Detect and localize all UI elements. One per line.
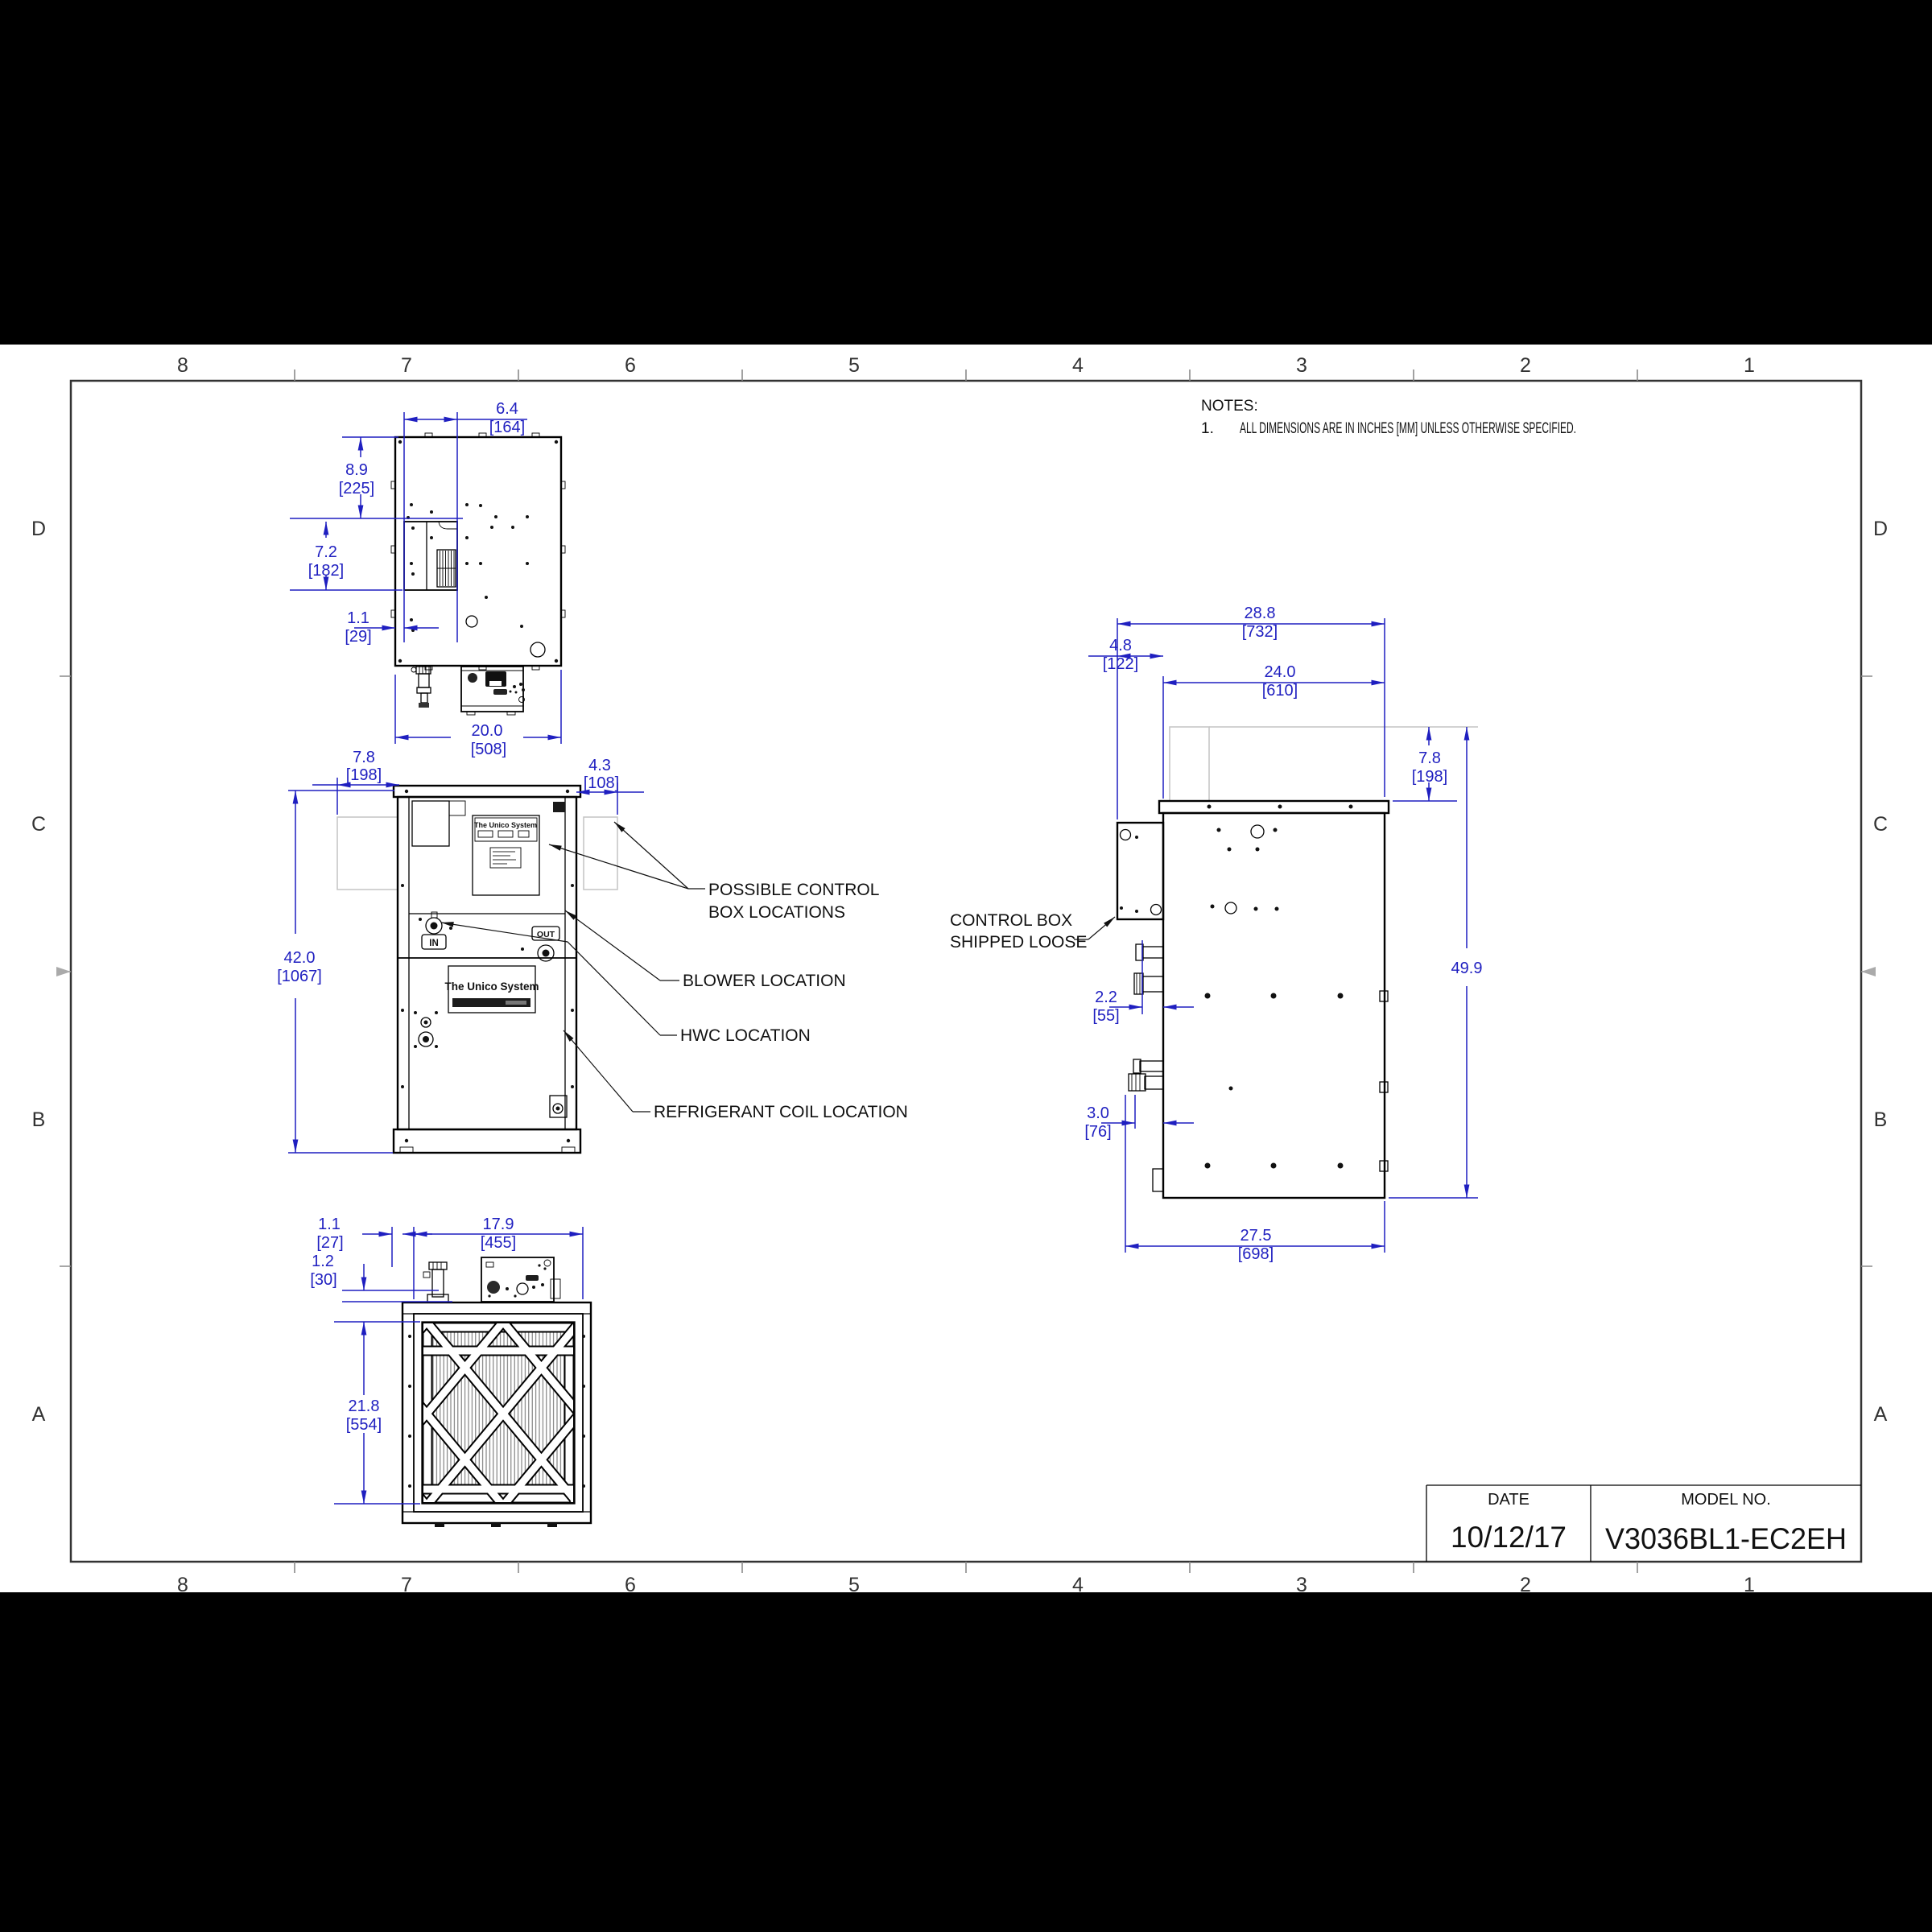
svg-text:[554]: [554] [346, 1416, 382, 1434]
svg-text:[108]: [108] [584, 774, 619, 792]
zone-row-right-B: B [1874, 1108, 1888, 1131]
svg-text:[610]: [610] [1262, 682, 1298, 700]
svg-text:4.8: 4.8 [1109, 637, 1132, 654]
svg-text:REFRIGERANT COIL LOCATION: REFRIGERANT COIL LOCATION [654, 1103, 908, 1121]
notes-title: NOTES: [1201, 398, 1258, 415]
svg-text:42.0: 42.0 [284, 949, 316, 967]
svg-text:1.1: 1.1 [318, 1216, 341, 1233]
svg-text:[698]: [698] [1238, 1245, 1274, 1263]
svg-text:[29]: [29] [345, 628, 371, 646]
svg-text:49.9: 49.9 [1451, 960, 1483, 977]
svg-text:27.5: 27.5 [1241, 1227, 1272, 1245]
svg-text:6.4: 6.4 [496, 400, 518, 418]
front-view-vent [553, 802, 565, 812]
zone-col-bot-1: 1 [1744, 1574, 1755, 1596]
svg-text:BOX LOCATIONS: BOX LOCATIONS [708, 903, 845, 922]
svg-text:[122]: [122] [1103, 655, 1138, 673]
zone-col-top-4: 4 [1072, 354, 1084, 377]
zone-row-right-C: C [1873, 813, 1888, 836]
svg-text:8.9: 8.9 [345, 461, 368, 479]
zone-col-bot-6: 6 [625, 1574, 636, 1596]
logo-plate-text: The Unico System [444, 980, 539, 993]
svg-text:4.3: 4.3 [588, 757, 611, 774]
svg-text:[164]: [164] [489, 419, 525, 436]
svg-text:17.9: 17.9 [483, 1216, 514, 1233]
svg-text:7.8: 7.8 [353, 749, 375, 766]
svg-text:[225]: [225] [339, 480, 374, 497]
zone-col-bot-4: 4 [1072, 1574, 1084, 1596]
note-1-text: ALL DIMENSIONS ARE IN INCHES [MM] UNLESS… [1240, 420, 1576, 437]
note-1-number: 1. [1201, 420, 1214, 437]
svg-text:28.8: 28.8 [1245, 605, 1276, 622]
zone-col-top-3: 3 [1296, 354, 1307, 377]
svg-text:1.1: 1.1 [347, 609, 369, 627]
zone-col-bot-5: 5 [848, 1574, 860, 1596]
svg-text:21.8: 21.8 [349, 1397, 380, 1415]
title-date-label: DATE [1488, 1491, 1529, 1509]
svg-text:[182]: [182] [308, 562, 344, 580]
svg-text:HWC LOCATION: HWC LOCATION [680, 1026, 811, 1045]
svg-text:3.0: 3.0 [1087, 1104, 1109, 1122]
zone-col-top-7: 7 [401, 354, 412, 377]
zone-col-top-5: 5 [848, 354, 860, 377]
zone-col-bot-8: 8 [177, 1574, 188, 1596]
svg-text:[30]: [30] [310, 1271, 336, 1289]
svg-text:[198]: [198] [1412, 768, 1447, 786]
svg-text:2.2: 2.2 [1095, 989, 1117, 1006]
svg-text:BLOWER LOCATION: BLOWER LOCATION [683, 972, 846, 990]
zone-row-left-C: C [31, 813, 46, 836]
title-model-label: MODEL NO. [1681, 1491, 1771, 1509]
title-date-value: 10/12/17 [1451, 1521, 1567, 1554]
svg-text:CONTROL BOX: CONTROL BOX [950, 911, 1072, 930]
svg-text:[1067]: [1067] [277, 968, 322, 985]
zone-col-bot-2: 2 [1520, 1574, 1531, 1596]
svg-text:1.2: 1.2 [312, 1253, 334, 1270]
svg-text:POSSIBLE CONTROL: POSSIBLE CONTROL [708, 881, 879, 899]
svg-text:24.0: 24.0 [1265, 663, 1296, 681]
title-model-value: V3036BL1-EC2EH [1605, 1522, 1847, 1555]
zone-col-bot-3: 3 [1296, 1574, 1307, 1596]
drawing-sheet: 8 7 6 5 4 3 2 1 8 7 6 5 4 3 2 1 D C B A … [0, 0, 1932, 1932]
in-port-label: IN [429, 939, 439, 948]
zone-col-top-1: 1 [1744, 354, 1755, 377]
svg-text:7.2: 7.2 [315, 543, 337, 561]
svg-text:[508]: [508] [471, 741, 506, 758]
panel-logo-text: The Unico System [474, 821, 537, 829]
zone-col-top-6: 6 [625, 354, 636, 377]
svg-text:SHIPPED LOOSE: SHIPPED LOOSE [950, 933, 1087, 952]
svg-text:[732]: [732] [1242, 623, 1278, 641]
zone-row-left-D: D [31, 518, 46, 540]
svg-text:[76]: [76] [1084, 1123, 1111, 1141]
zone-row-right-D: D [1873, 518, 1888, 540]
svg-text:[455]: [455] [481, 1234, 516, 1252]
zone-row-left-A: A [32, 1403, 46, 1426]
svg-text:[27]: [27] [316, 1234, 343, 1252]
zone-row-right-A: A [1874, 1403, 1888, 1426]
svg-text:20.0: 20.0 [472, 722, 503, 740]
svg-text:[198]: [198] [346, 766, 382, 784]
zone-col-top-8: 8 [177, 354, 188, 377]
svg-text:[55]: [55] [1092, 1007, 1119, 1025]
svg-text:7.8: 7.8 [1418, 749, 1441, 767]
zone-col-top-2: 2 [1520, 354, 1531, 377]
zone-row-left-B: B [32, 1108, 46, 1131]
zone-col-bot-7: 7 [401, 1574, 412, 1596]
